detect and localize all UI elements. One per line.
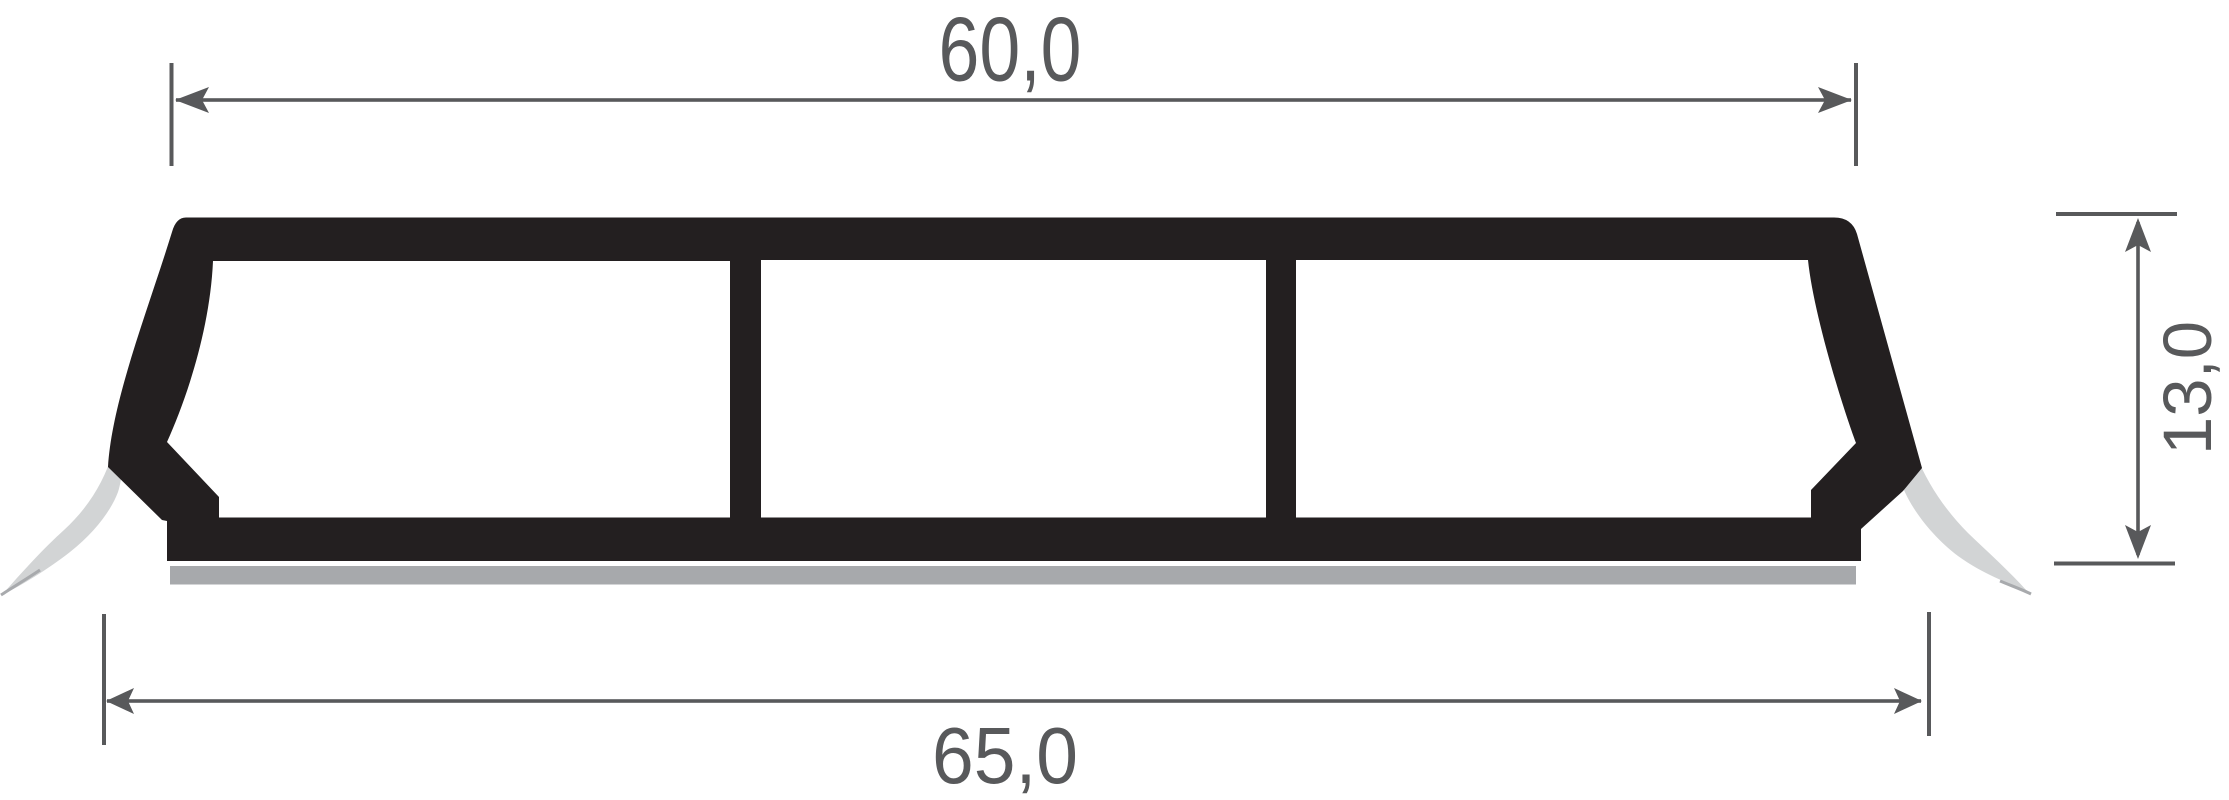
svg-text:65,0: 65,0	[932, 711, 1078, 800]
svg-text:60,0: 60,0	[939, 0, 1082, 101]
svg-text:13,0: 13,0	[2149, 321, 2226, 455]
